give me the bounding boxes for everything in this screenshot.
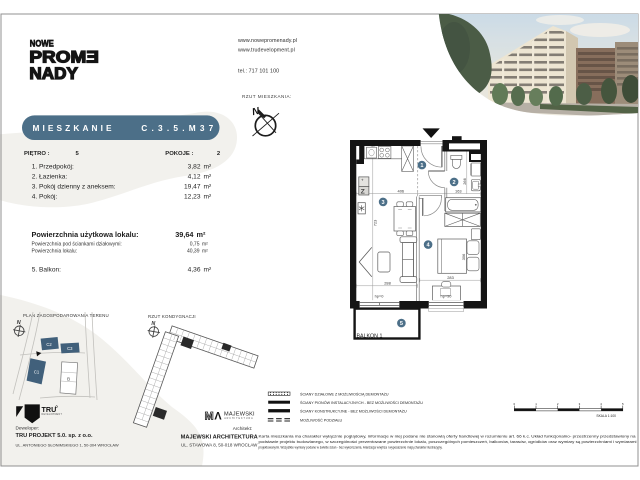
svg-text:Powierzchnia pod ściankami dzi: Powierzchnia pod ściankami działowymi: <box>32 242 122 248</box>
svg-text:40,39: 40,39 <box>187 249 200 255</box>
svg-text:RZUT KONDYGNACJI: RZUT KONDYGNACJI <box>148 314 196 319</box>
svg-text:RZUT MIESZKANIA:: RZUT MIESZKANIA: <box>242 94 292 99</box>
svg-text:0,75: 0,75 <box>190 242 200 248</box>
svg-text:2. Łazienka:: 2. Łazienka: <box>32 173 68 180</box>
svg-text:BALKON 1: BALKON 1 <box>357 334 383 340</box>
svg-text:266: 266 <box>462 178 467 185</box>
svg-text:C.3.5.M37: C.3.5.M37 <box>141 123 213 133</box>
svg-text:Architekt:: Architekt: <box>233 426 253 431</box>
svg-text:288: 288 <box>384 281 391 286</box>
svg-text:19,47: 19,47 <box>184 184 201 191</box>
svg-text:3: 3 <box>382 200 385 206</box>
svg-text:5. Balkon:: 5. Balkon: <box>32 267 61 274</box>
svg-text:m²: m² <box>204 173 212 180</box>
svg-text:Karta mieszkania ma charakter: Karta mieszkania ma charakter wyłącznie … <box>259 434 636 438</box>
svg-text:ŚCIANY DZIAŁOWE Z MOŻLIWOŚCIĄ: ŚCIANY DZIAŁOWE Z MOŻLIWOŚCIĄ DEMONTAŻU <box>300 392 389 397</box>
svg-text:ŚCIANY KONSTRUKCYJNE - BEZ MOŻ: ŚCIANY KONSTRUKCYJNE - BEZ MOŻLIWOŚCI DE… <box>300 409 407 414</box>
svg-text:TRU: TRU <box>42 405 57 414</box>
svg-text:hp=0: hp=0 <box>375 294 385 299</box>
svg-text:SKALA 1:100: SKALA 1:100 <box>596 414 616 418</box>
svg-text:163: 163 <box>455 189 462 194</box>
svg-text:ŚCIANY PIONÓW INSTALACYJNYCH -: ŚCIANY PIONÓW INSTALACYJNYCH - BEZ MOŻLI… <box>300 400 423 405</box>
svg-text:N: N <box>17 320 21 326</box>
svg-text:tel.: 717 101 100: tel.: 717 101 100 <box>238 69 279 75</box>
svg-text:POKOJE :: POKOJE : <box>165 151 193 157</box>
svg-text:5: 5 <box>400 321 403 327</box>
svg-text:PLAN ZAGOSPODAROWANIA TERENU: PLAN ZAGOSPODAROWANIA TERENU <box>23 313 109 318</box>
svg-text:406: 406 <box>398 189 405 194</box>
svg-text:m²: m² <box>204 267 212 274</box>
svg-text:Deweloper:: Deweloper: <box>16 426 40 431</box>
svg-text:UL. ANTONIEGO SŁONIMSKIEGO 1,: UL. ANTONIEGO SŁONIMSKIEGO 1, 50-304 WRO… <box>16 442 119 447</box>
svg-text:723: 723 <box>372 220 377 227</box>
svg-text:306: 306 <box>461 254 466 261</box>
svg-text:m²: m² <box>197 230 206 239</box>
svg-text:12,23: 12,23 <box>184 193 201 200</box>
svg-text:C2: C2 <box>46 342 52 347</box>
svg-text:1. Przedpokój:: 1. Przedpokój: <box>32 163 74 170</box>
svg-text:m²: m² <box>202 249 208 255</box>
svg-text:PIĘTRO :: PIĘTRO : <box>24 151 50 157</box>
svg-text:m²: m² <box>204 163 212 170</box>
svg-text:projektowanymi. Wszystkie wymi: projektowanymi. Wszystkie wymiary podane… <box>259 445 443 449</box>
svg-text:TRU PROJEKT 5.0. sp. z o.o.: TRU PROJEKT 5.0. sp. z o.o. <box>16 433 94 439</box>
svg-text:m²: m² <box>204 184 212 191</box>
svg-text:4,12: 4,12 <box>188 173 201 180</box>
svg-text:www.nowepromenady.pl: www.nowepromenady.pl <box>238 38 297 44</box>
svg-text:MAJEWSKI ARCHITEKTURA: MAJEWSKI ARCHITEKTURA <box>181 435 258 441</box>
svg-text:3. Pokój dzienny z aneksem:: 3. Pokój dzienny z aneksem: <box>32 184 116 191</box>
svg-text:4. Pokój:: 4. Pokój: <box>32 193 58 200</box>
svg-text:NADY: NADY <box>29 65 78 83</box>
svg-text:+: + <box>361 178 364 183</box>
svg-text:N: N <box>151 321 155 327</box>
svg-text:NOWE: NOWE <box>30 39 54 49</box>
svg-text:DEVELOPMENT: DEVELOPMENT <box>42 414 63 416</box>
svg-text:283: 283 <box>447 275 454 280</box>
svg-text:m²: m² <box>202 242 208 248</box>
svg-text:ARCHITEKTURA: ARCHITEKTURA <box>224 417 253 420</box>
svg-text:4,36: 4,36 <box>188 267 201 274</box>
svg-text:hp=90: hp=90 <box>441 294 453 299</box>
svg-text:1: 1 <box>420 163 423 169</box>
svg-text:3,82: 3,82 <box>188 163 201 170</box>
svg-text:podstawie projektu budowlanego: podstawie projektu budowlanego, w szczeg… <box>259 440 637 444</box>
svg-text:39,64: 39,64 <box>175 230 194 239</box>
svg-text:Λ: Λ <box>214 410 222 422</box>
svg-text:m²: m² <box>204 193 212 200</box>
svg-text:Z: Z <box>361 188 365 195</box>
svg-text:UL. STAWOWA 8, 50-018 WROCŁAW: UL. STAWOWA 8, 50-018 WROCŁAW <box>181 442 258 447</box>
svg-text:C3: C3 <box>67 346 73 351</box>
svg-text:M: M <box>205 410 214 422</box>
svg-text:MIESZKANIE: MIESZKANIE <box>33 123 115 133</box>
svg-text:www.trudevelopment.pl: www.trudevelopment.pl <box>238 47 295 53</box>
svg-text:C1: C1 <box>34 370 40 375</box>
svg-text:Powierzchnia lokalu:: Powierzchnia lokalu: <box>32 249 78 255</box>
svg-text:MOŻLIWOŚĆ PODZIAŁU: MOŻLIWOŚĆ PODZIAŁU <box>300 418 343 423</box>
svg-text:2: 2 <box>453 180 456 186</box>
svg-text:B: B <box>67 376 70 382</box>
svg-text:Powierzchnia użytkowa lokalu:: Powierzchnia użytkowa lokalu: <box>32 230 139 239</box>
